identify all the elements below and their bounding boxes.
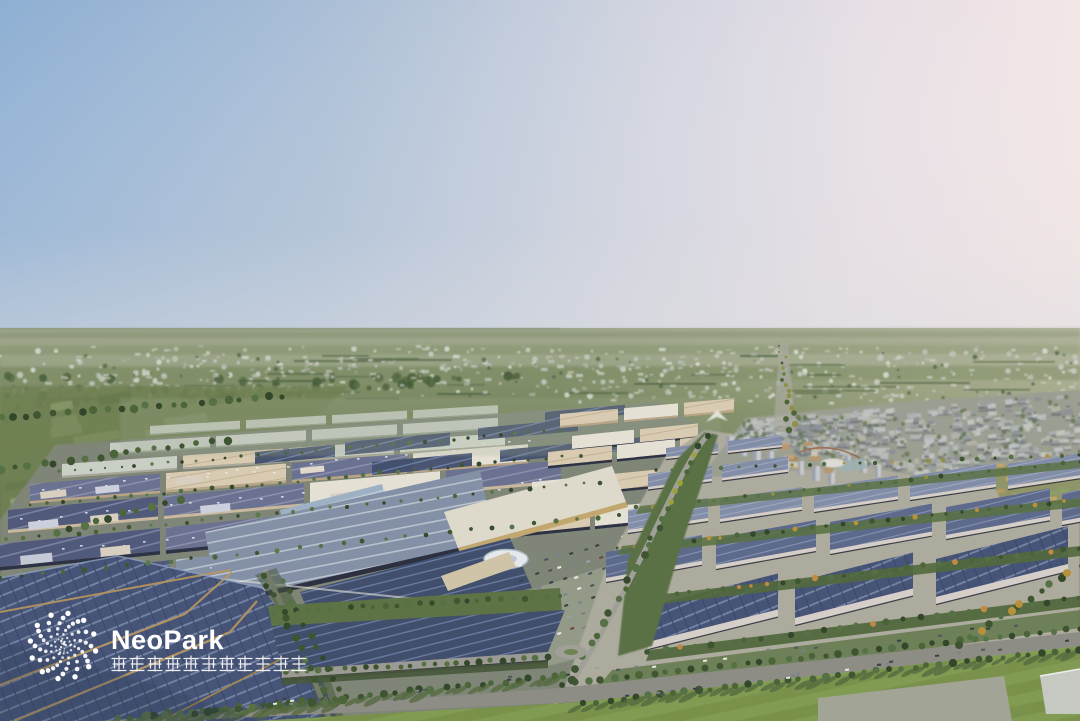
svg-text:NeoPark: NeoPark: [111, 625, 225, 655]
